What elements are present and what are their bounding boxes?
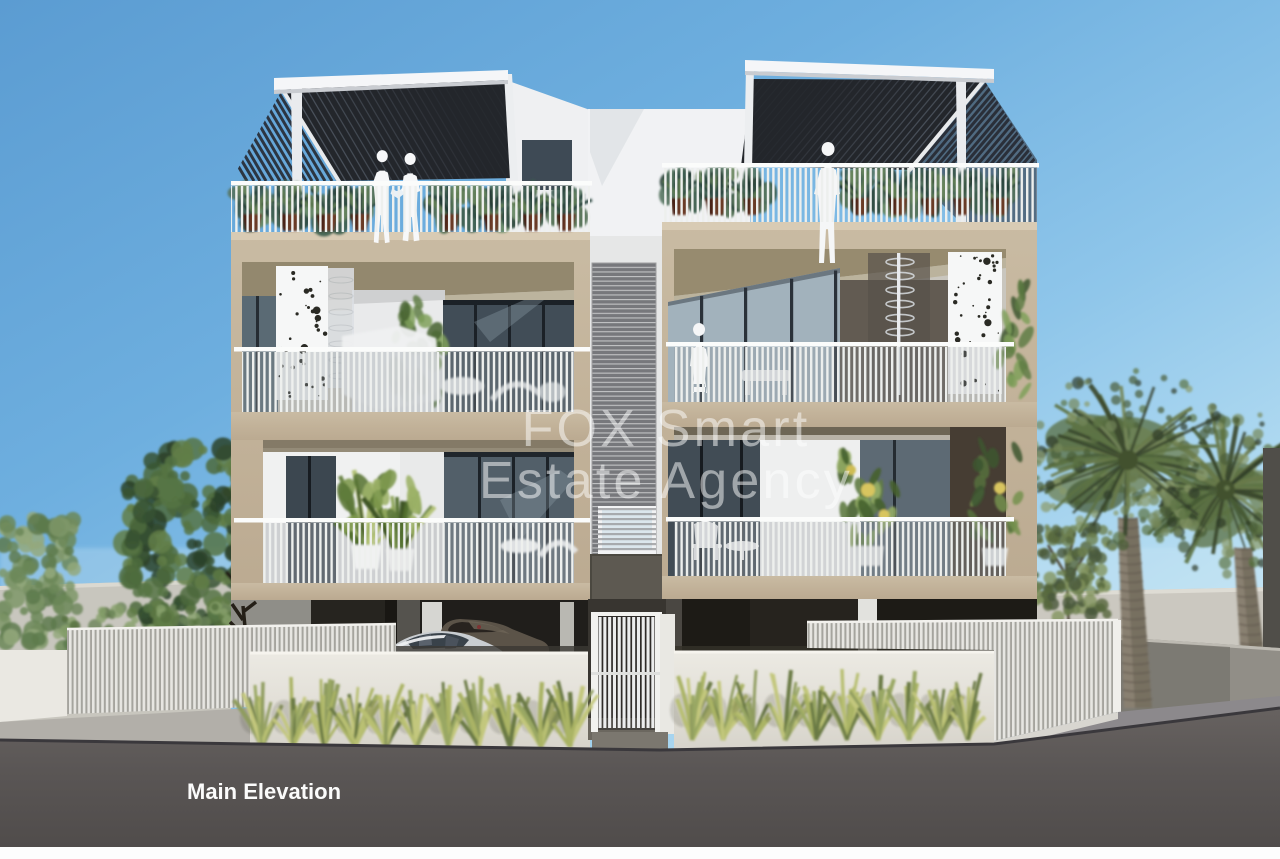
svg-text:Main Elevation: Main Elevation (187, 779, 341, 804)
svg-text:Estate Agency: Estate Agency (479, 452, 853, 510)
svg-text:FOX Smart: FOX Smart (522, 400, 811, 458)
